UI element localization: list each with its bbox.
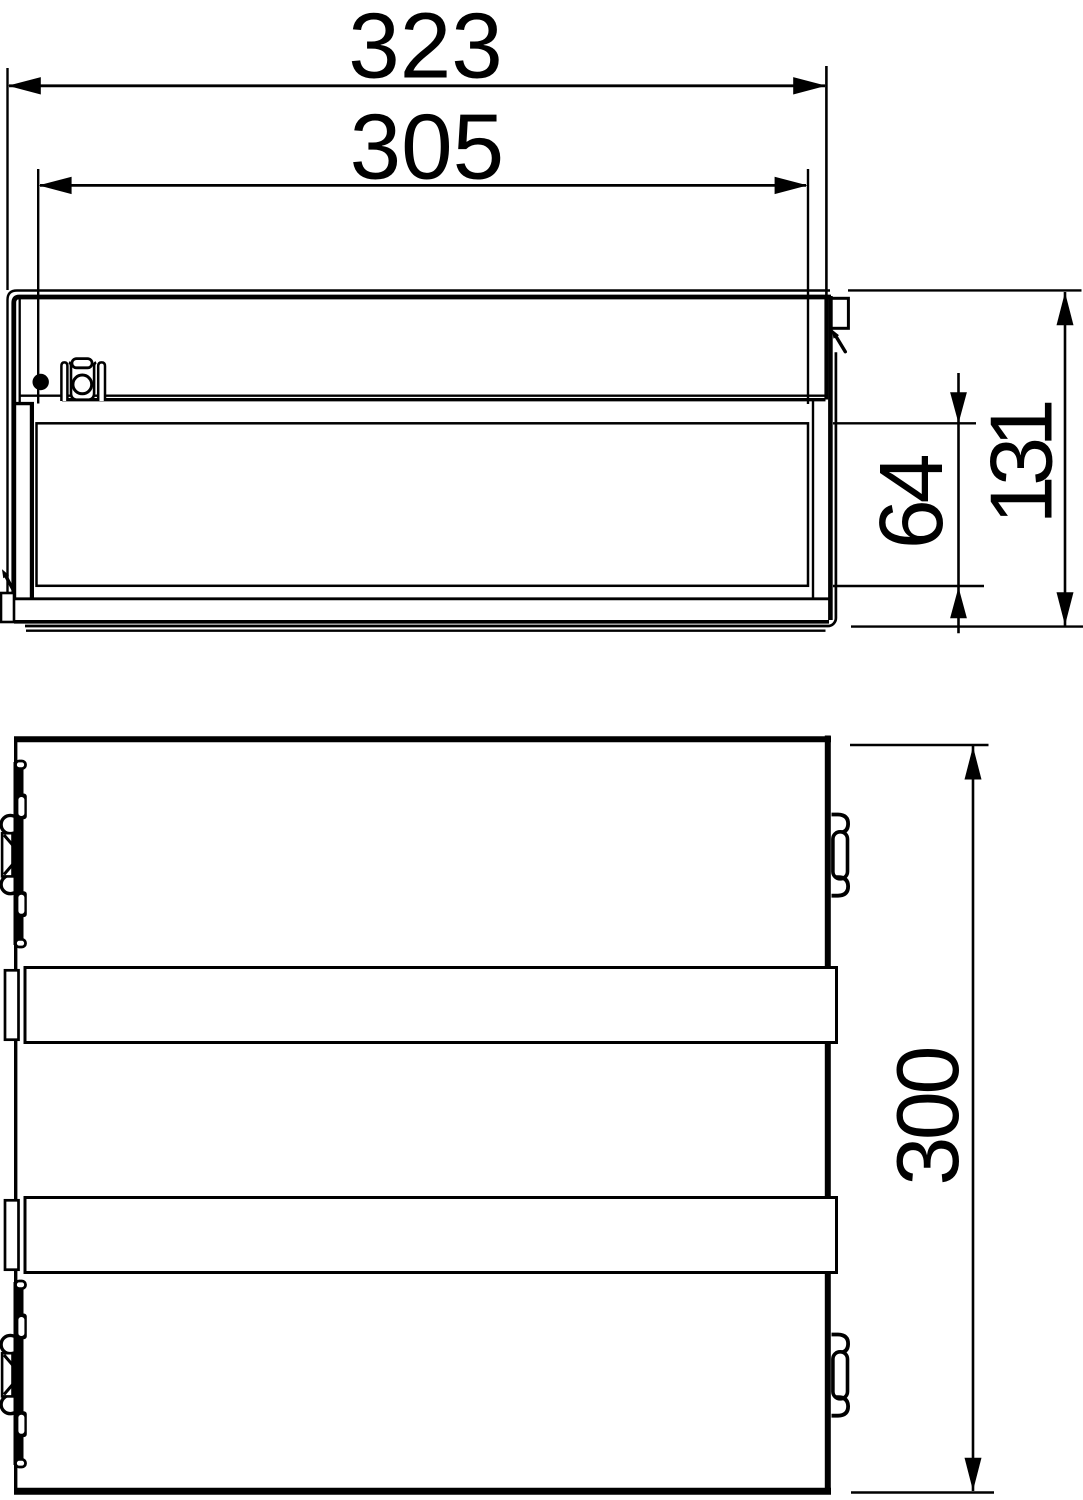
svg-text:300: 300 (878, 1046, 977, 1186)
svg-text:64: 64 (862, 453, 962, 549)
svg-text:131: 131 (972, 398, 1071, 524)
svg-text:323: 323 (348, 0, 503, 98)
svg-text:305: 305 (350, 95, 505, 199)
